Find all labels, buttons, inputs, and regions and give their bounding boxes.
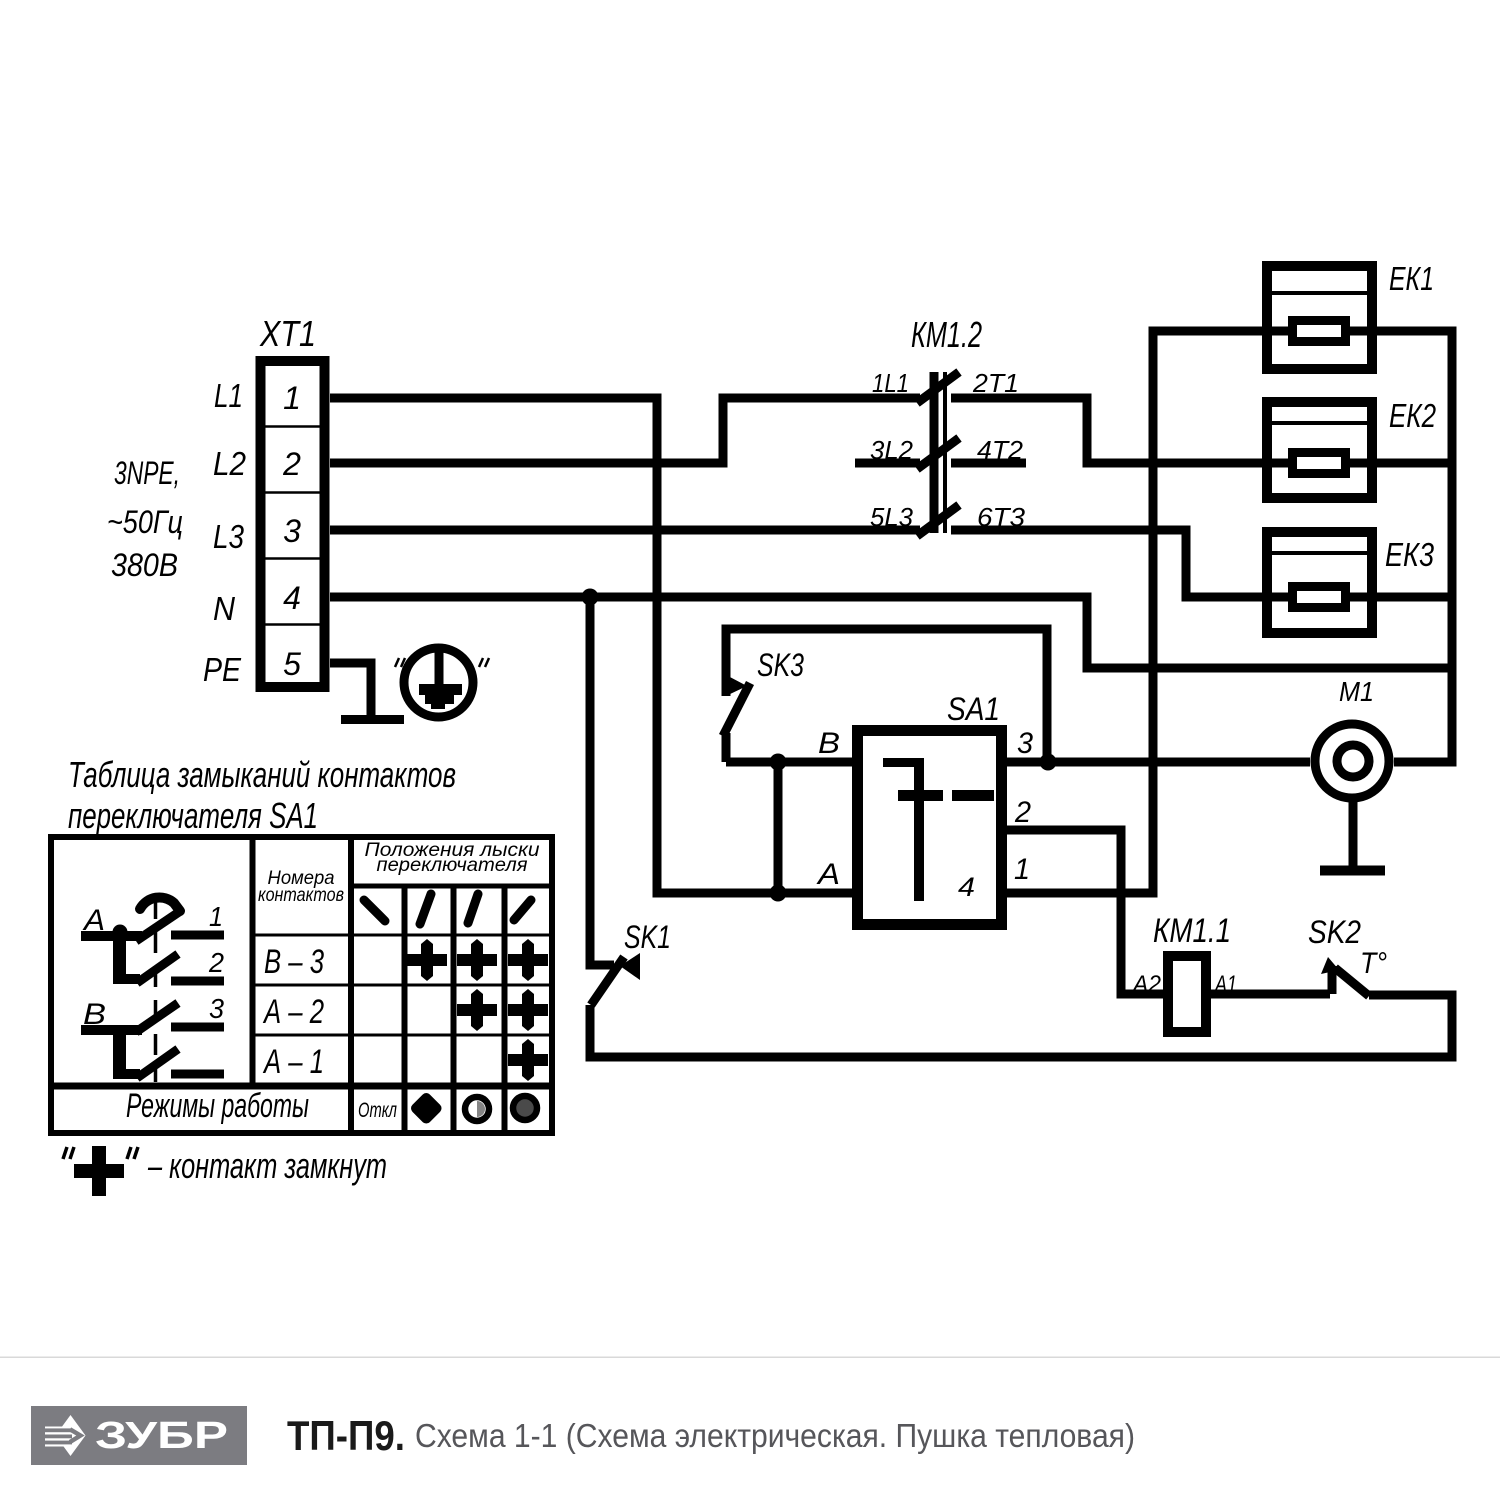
svg-text:– контакт замкнут: – контакт замкнут: [147, 1145, 387, 1186]
svg-text:ЕК2: ЕК2: [1389, 397, 1436, 434]
svg-text:ТП-П9.: ТП-П9.: [287, 1412, 405, 1459]
svg-text:PE: PE: [203, 651, 242, 688]
svg-text:В: В: [818, 727, 840, 760]
svg-text:А2: А2: [1131, 971, 1161, 998]
svg-text:Таблица замыканий контактов: Таблица замыканий контактов: [68, 754, 456, 795]
svg-text:А – 1: А – 1: [262, 1043, 324, 1081]
svg-text:1L1: 1L1: [872, 368, 909, 398]
svg-text:SK1: SK1: [624, 919, 671, 955]
svg-text:Т°: Т°: [1360, 947, 1387, 980]
svg-text:переключателя SA1: переключателя SA1: [68, 795, 318, 836]
svg-text:N: N: [213, 590, 235, 627]
svg-text:А: А: [816, 858, 840, 891]
svg-text:В: В: [83, 998, 106, 1031]
svg-text:М1: М1: [1339, 676, 1374, 707]
svg-text:3: 3: [1017, 727, 1033, 760]
svg-text:В – 3: В – 3: [264, 943, 324, 981]
svg-text:L2: L2: [213, 445, 246, 482]
svg-text:контактов: контактов: [258, 885, 344, 906]
svg-text:переключателя: переключателя: [377, 855, 528, 876]
svg-text:Откл: Откл: [358, 1099, 397, 1122]
svg-text:1: 1: [1014, 853, 1030, 886]
svg-text:L1: L1: [214, 377, 243, 414]
svg-text:ЕК3: ЕК3: [1385, 536, 1435, 573]
svg-text:5L3: 5L3: [870, 502, 914, 532]
svg-text:4: 4: [283, 580, 301, 616]
svg-text:380В: 380В: [111, 547, 178, 583]
svg-text:1: 1: [283, 380, 301, 416]
svg-text:L3: L3: [213, 518, 245, 555]
svg-text:SK3: SK3: [757, 647, 804, 683]
svg-text:SK2: SK2: [1308, 914, 1361, 950]
svg-text:5: 5: [283, 646, 301, 682]
svg-text:КМ1.1: КМ1.1: [1153, 912, 1231, 950]
svg-text:3NPE,: 3NPE,: [114, 455, 180, 491]
svg-text:2: 2: [1014, 796, 1031, 829]
svg-text:XT1: XT1: [259, 313, 316, 354]
svg-text:~50Гц: ~50Гц: [107, 504, 183, 540]
svg-text:4: 4: [958, 872, 975, 902]
svg-text:2: 2: [208, 947, 224, 978]
svg-text:А – 2: А – 2: [262, 993, 324, 1031]
svg-text:2: 2: [282, 446, 301, 482]
svg-text:1: 1: [209, 901, 223, 932]
svg-text:А: А: [82, 904, 105, 937]
svg-text:ЕК1: ЕК1: [1389, 260, 1434, 297]
svg-text:SA1: SA1: [947, 691, 1000, 727]
svg-text:3: 3: [209, 993, 224, 1024]
svg-text:КМ1.2: КМ1.2: [911, 314, 982, 355]
svg-text:3: 3: [283, 513, 301, 549]
svg-text:ЗУБР: ЗУБР: [95, 1415, 228, 1457]
svg-text:Схема 1-1 (Схема электрическая: Схема 1-1 (Схема электрическая. Пушка те…: [415, 1417, 1135, 1454]
svg-text:Режимы работы: Режимы работы: [126, 1087, 309, 1125]
